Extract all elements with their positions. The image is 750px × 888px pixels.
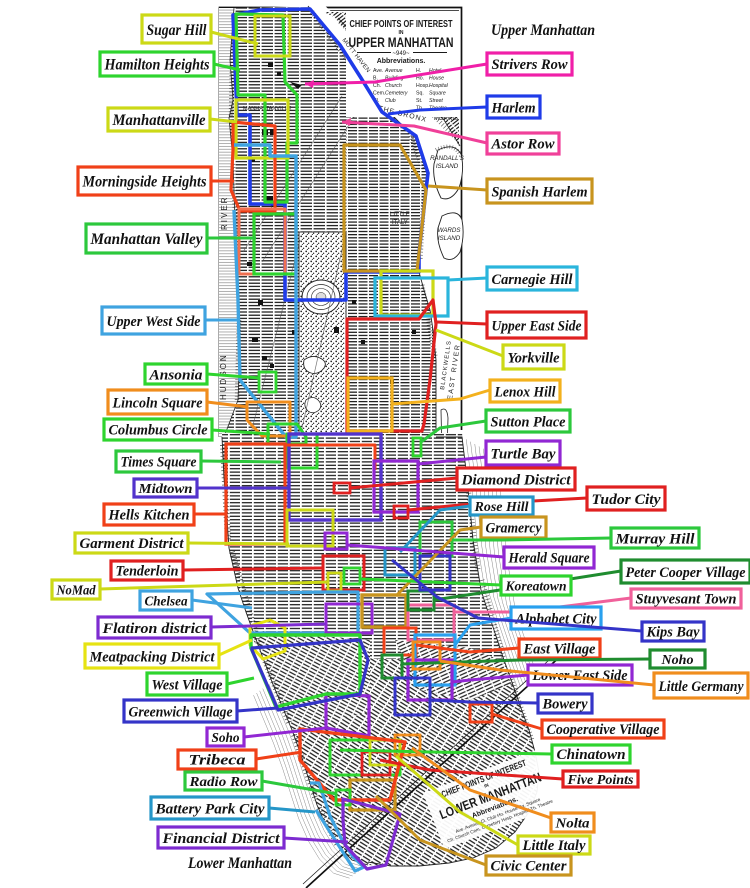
svg-text:Battery Park City: Battery Park City	[154, 801, 264, 817]
svg-text:Carnegie Hill: Carnegie Hill	[492, 272, 574, 288]
svg-text:Cem.: Cem.	[373, 91, 385, 97]
svg-text:House: House	[429, 76, 444, 82]
svg-text:Hells Kitchen: Hells Kitchen	[108, 508, 190, 524]
svg-text:Meatpacking District: Meatpacking District	[89, 649, 216, 665]
svg-text:H.: H.	[416, 68, 421, 74]
svg-text:Peter Cooper Village: Peter Cooper Village	[626, 565, 746, 581]
svg-text:Church: Church	[385, 83, 402, 89]
svg-text:Club: Club	[385, 98, 396, 104]
svg-text:Ansonia: Ansonia	[148, 367, 203, 383]
svg-text:Turtle Bay: Turtle Bay	[491, 446, 556, 462]
svg-text:Strivers Row: Strivers Row	[492, 57, 568, 73]
svg-text:Avenue: Avenue	[384, 68, 403, 74]
svg-text:Civic Center: Civic Center	[491, 859, 567, 875]
svg-text:Columbus Circle: Columbus Circle	[109, 423, 209, 439]
svg-text:Astor Row: Astor Row	[490, 137, 554, 153]
svg-text:Hospital: Hospital	[429, 83, 449, 89]
svg-text:Diamond District: Diamond District	[460, 472, 571, 488]
svg-text:Bowery: Bowery	[542, 697, 589, 713]
svg-text:CHIEF POINTS OF INTEREST: CHIEF POINTS OF INTEREST	[350, 19, 453, 30]
svg-text:Koreatown: Koreatown	[505, 580, 567, 595]
svg-text:~949~: ~949~	[392, 51, 410, 57]
svg-text:Chinatown: Chinatown	[557, 747, 626, 763]
svg-text:Upper East Side: Upper East Side	[492, 318, 582, 334]
svg-text:Lower Manhattan: Lower Manhattan	[187, 855, 292, 872]
svg-text:Stuyvesant Town: Stuyvesant Town	[636, 592, 737, 608]
svg-text:Flatiron district: Flatiron district	[101, 621, 207, 637]
svg-text:Garment District: Garment District	[80, 536, 185, 552]
svg-text:Little Italy: Little Italy	[521, 838, 586, 854]
svg-text:NoMad: NoMad	[56, 584, 97, 599]
svg-text:RANDALL'S: RANDALL'S	[430, 155, 465, 162]
svg-text:Little Germany: Little Germany	[658, 679, 744, 695]
svg-text:Nolta: Nolta	[554, 817, 589, 832]
svg-text:St.: St.	[416, 98, 422, 104]
svg-text:Morningside Heights: Morningside Heights	[82, 174, 207, 191]
svg-text:Greenwich Village: Greenwich Village	[129, 704, 233, 720]
svg-text:MANHATTANVILLE: MANHATTANVILLE	[243, 106, 292, 112]
svg-text:Lincoln Square: Lincoln Square	[112, 395, 203, 411]
svg-text:Radio Row: Radio Row	[188, 775, 258, 790]
svg-text:Hamilton Heights: Hamilton Heights	[104, 57, 210, 74]
svg-text:West Village: West Village	[152, 677, 223, 693]
svg-text:Street: Street	[429, 98, 443, 104]
svg-text:RIVER: RIVER	[220, 196, 229, 230]
svg-text:Upper Manhattan: Upper Manhattan	[491, 22, 595, 39]
svg-text:Noho: Noho	[660, 653, 693, 668]
svg-text:WARDS: WARDS	[438, 227, 462, 234]
svg-text:Tudor City: Tudor City	[592, 492, 661, 508]
svg-text:Yorkville: Yorkville	[508, 350, 560, 366]
svg-text:Tribeca: Tribeca	[189, 753, 246, 769]
svg-text:Ch.: Ch.	[373, 83, 381, 89]
svg-text:ISLAND: ISLAND	[436, 163, 459, 170]
svg-text:Manhattanville: Manhattanville	[112, 112, 206, 129]
svg-text:Five Points: Five Points	[566, 773, 634, 788]
svg-text:Chelsea: Chelsea	[145, 595, 188, 610]
svg-text:Herald Square: Herald Square	[508, 551, 590, 567]
svg-text:Rose Hill: Rose Hill	[474, 500, 529, 515]
svg-text:Tenderloin: Tenderloin	[116, 564, 179, 580]
svg-text:Cemetery: Cemetery	[385, 91, 408, 97]
svg-text:Manhattan Valley: Manhattan Valley	[90, 231, 203, 248]
svg-text:ITALY: ITALY	[392, 220, 408, 226]
svg-text:Cooperative Village: Cooperative Village	[547, 722, 661, 738]
svg-text:Soho: Soho	[212, 731, 240, 746]
svg-text:Spanish Harlem: Spanish Harlem	[492, 184, 588, 200]
svg-text:Kips Bay: Kips Bay	[646, 625, 701, 641]
svg-text:Times Square: Times Square	[121, 455, 198, 471]
svg-text:Ave.: Ave.	[373, 68, 383, 74]
svg-text:Murray Hill: Murray Hill	[614, 531, 695, 547]
svg-text:Gramercy: Gramercy	[486, 521, 543, 537]
svg-text:Midtown: Midtown	[137, 482, 192, 497]
svg-text:Financial District: Financial District	[161, 831, 280, 847]
svg-text:UPPER MANHATTAN: UPPER MANHATTAN	[349, 35, 454, 50]
svg-text:Square: Square	[429, 91, 446, 97]
svg-text:Sutton Place: Sutton Place	[491, 414, 566, 430]
svg-text:East Village: East Village	[523, 642, 597, 658]
svg-text:Upper West Side: Upper West Side	[107, 314, 201, 330]
svg-text:Abbreviations.: Abbreviations.	[377, 58, 426, 65]
svg-text:Sugar Hill: Sugar Hill	[147, 22, 207, 39]
svg-text:Harlem: Harlem	[491, 100, 536, 116]
svg-text:Lenox Hill: Lenox Hill	[494, 384, 557, 400]
svg-text:LITTLE: LITTLE	[390, 212, 410, 218]
svg-text:Sq.: Sq.	[416, 91, 424, 97]
svg-text:Hosp.: Hosp.	[416, 83, 430, 89]
svg-text:ISLAND: ISLAND	[438, 235, 461, 242]
